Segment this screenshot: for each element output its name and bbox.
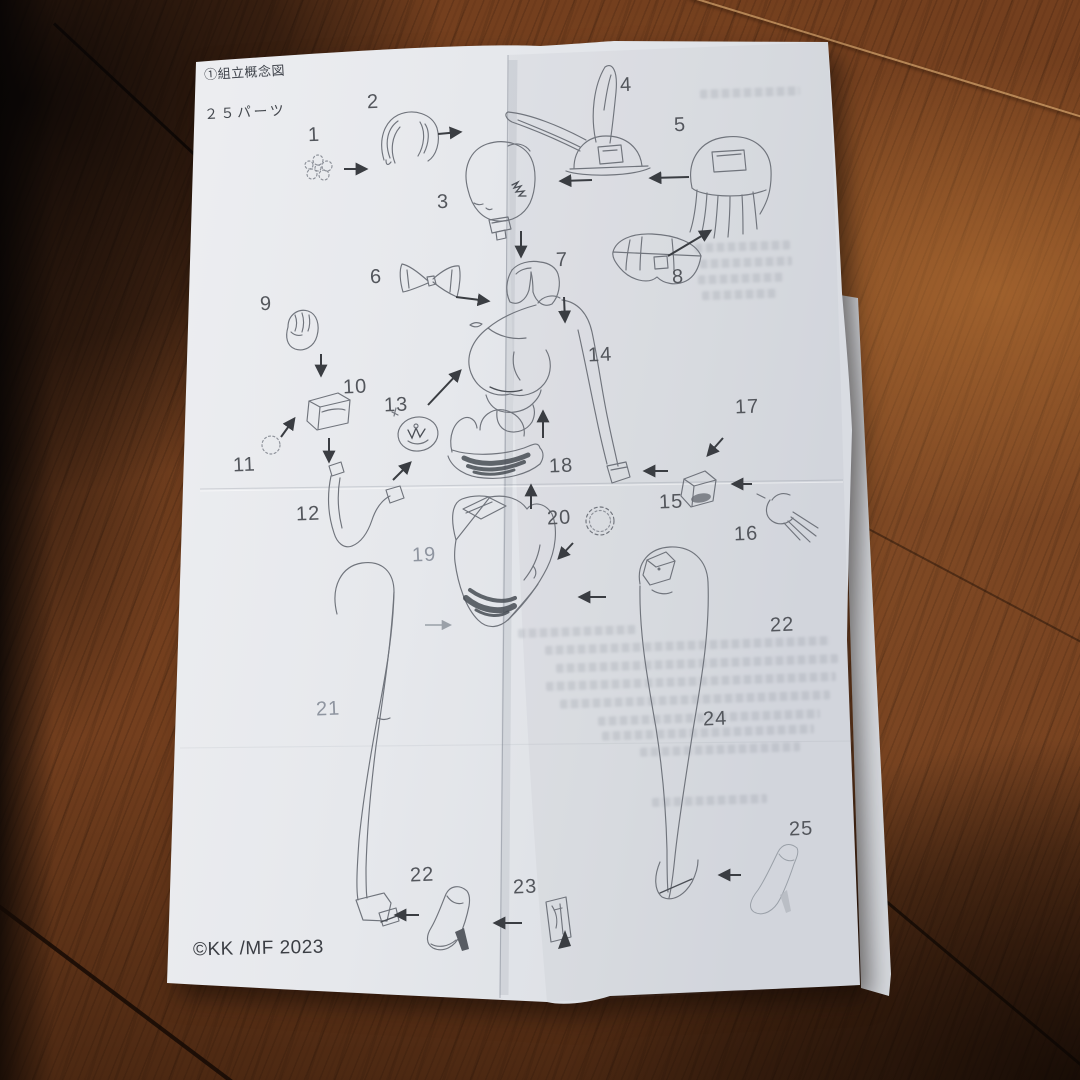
part-number-label: 20 bbox=[547, 507, 572, 531]
part-number-label: 18 bbox=[549, 455, 574, 479]
part-number-label: 11 bbox=[233, 454, 257, 478]
part-number-label: 9 bbox=[260, 293, 273, 316]
part-number-label: 2 bbox=[367, 91, 380, 114]
paper-sheet-graphics bbox=[0, 0, 1080, 1080]
part-number-label: 4 bbox=[620, 74, 633, 97]
part-number-label: 23 bbox=[513, 876, 538, 900]
part-number-label: 12 bbox=[296, 503, 321, 527]
part-number-label: 3 bbox=[437, 191, 450, 214]
part-number-label: 17 bbox=[735, 396, 760, 420]
part-number-label: 10 bbox=[343, 376, 368, 400]
part-number-label: 14 bbox=[588, 344, 613, 368]
part-number-label: 19 bbox=[412, 544, 437, 568]
part-number-label: 25 bbox=[789, 818, 814, 842]
part-number-label: 22 bbox=[770, 614, 795, 638]
copyright-text: ©KK /MF 2023 bbox=[193, 937, 324, 962]
part-number-label: 21 bbox=[316, 698, 341, 722]
part-number-label: 7 bbox=[556, 249, 569, 272]
part-number-label: 8 bbox=[672, 266, 685, 289]
parts-count-label: ２５パーツ bbox=[204, 100, 287, 124]
part-number-label: 15 bbox=[659, 491, 684, 515]
part-number-label: 6 bbox=[370, 266, 383, 289]
part-number-label: 5 bbox=[674, 114, 687, 137]
part-number-label: 24 bbox=[703, 708, 728, 732]
part-number-label: 13 bbox=[384, 394, 409, 418]
part-number-label: 16 bbox=[734, 523, 759, 547]
part-number-label: 22 bbox=[410, 864, 435, 888]
part-number-label: 1 bbox=[308, 124, 321, 147]
photo-scene: ①組立概念図 ２５パーツ ©KK /MF 2023 12345678910111… bbox=[0, 0, 1080, 1080]
